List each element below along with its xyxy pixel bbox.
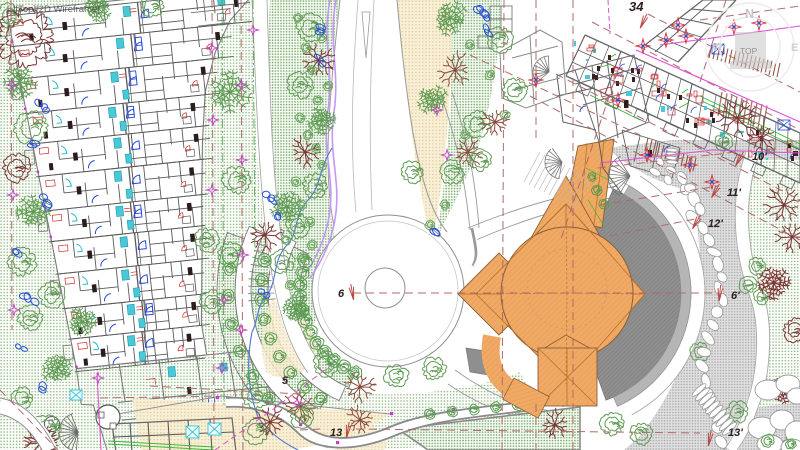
svg-text:10': 10' (752, 151, 767, 163)
svg-text:[-][Top][2D Wireframe]: [-][Top][2D Wireframe] (7, 4, 100, 15)
svg-text:34: 34 (629, 0, 644, 14)
svg-text:6: 6 (338, 288, 345, 300)
svg-text:N: N (745, 7, 754, 21)
svg-text:13: 13 (330, 427, 342, 439)
svg-text:6': 6' (731, 290, 740, 302)
svg-text:13': 13' (728, 427, 743, 439)
svg-text:W: W (712, 42, 723, 54)
svg-text:5: 5 (282, 375, 289, 387)
svg-text:E: E (791, 42, 798, 54)
svg-text:TOP: TOP (740, 46, 758, 56)
svg-text:11': 11' (727, 187, 741, 199)
svg-text:12': 12' (708, 218, 723, 230)
